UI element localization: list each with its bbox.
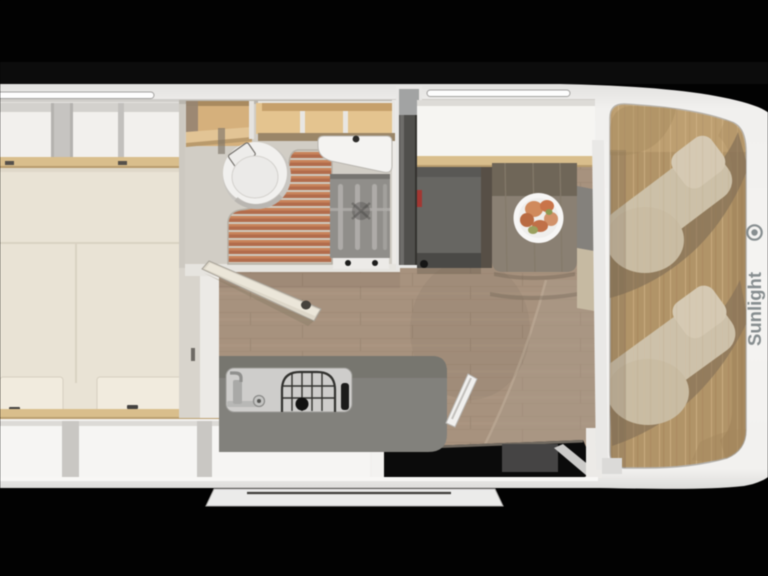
svg-text:Sunlight: Sunlight (744, 272, 765, 346)
